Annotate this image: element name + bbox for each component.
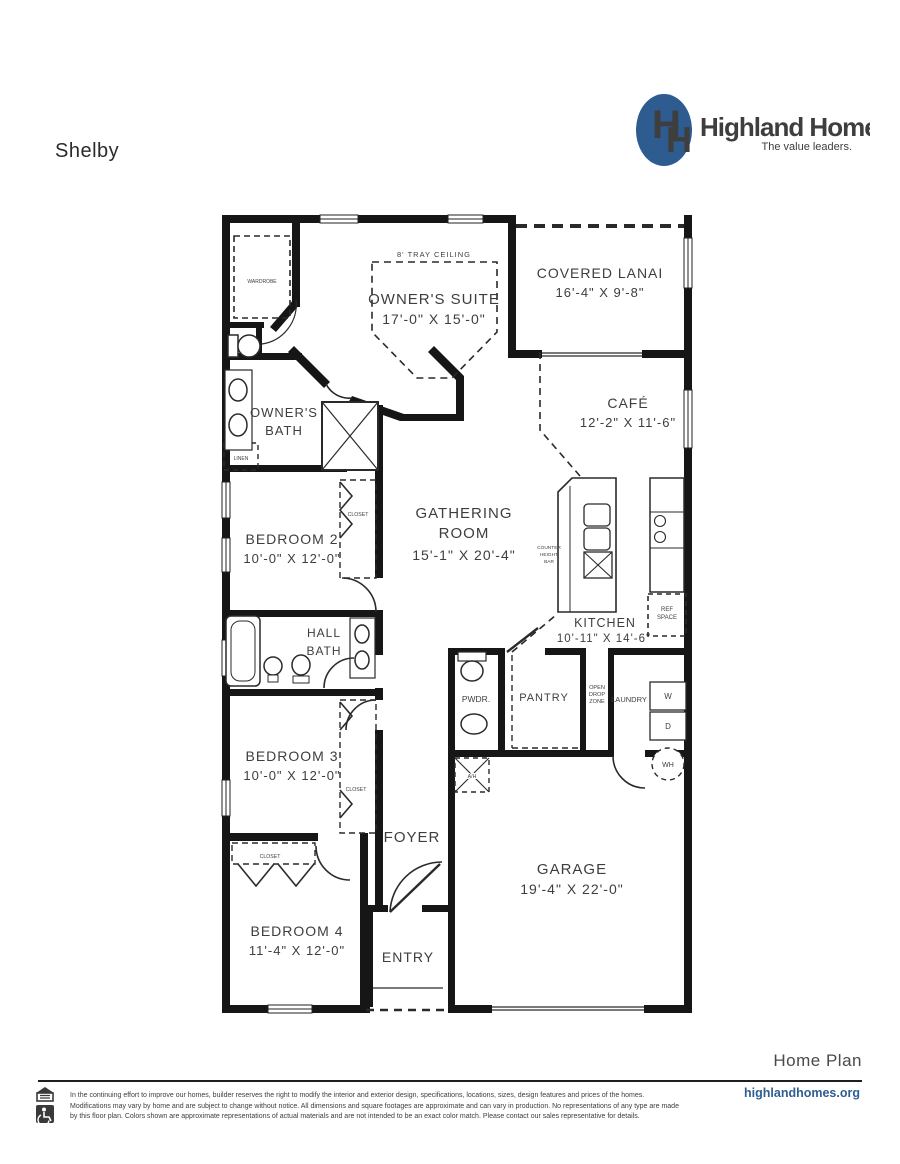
drop-zone-label1: OPEN [589,685,605,691]
owners-bath-label1: OWNER'S [250,405,318,420]
counter-bar-label3: BAR [544,559,554,565]
counter-bar-label2: HEIGHT [540,552,558,558]
bathtub-icon [226,616,260,686]
kitchen-island [558,478,616,612]
kitchen-label: KITCHEN [574,616,636,630]
water-heater-label: WH [662,762,674,769]
sink-icon [264,657,282,675]
range-icon [584,552,612,578]
owners-bath-label2: BATH [265,423,303,438]
footer-icons [34,1086,58,1126]
closet2-label: CLOSET [348,512,370,518]
covered-lanai-label: COVERED LANAI [537,265,664,281]
ref-space-label2: SPACE [657,615,677,621]
drop-zone-label3: ZONE [589,699,605,705]
hall-bath-label1: HALL [307,626,341,640]
home-plan-caption: Home Plan [773,1051,862,1071]
garage-dims: 19'-4" X 22'-0" [520,881,623,897]
covered-lanai-dims: 16'-4" X 9'-8" [556,285,645,300]
pantry-label: PANTRY [519,692,569,704]
cooktop-icon [655,532,666,543]
bedroom2-label: BEDROOM 2 [245,531,338,547]
counter-bar-label1: COUNTER [537,545,561,551]
garage-label: GARAGE [537,861,607,878]
foyer-label: FOYER [384,829,441,846]
gathering-room-label1: GATHERING [415,505,512,522]
owners-suite-dims: 17'-0" X 15'-0" [382,311,485,327]
gathering-room-dims: 15'-1" X 20'-4" [412,547,515,563]
sink-icon [229,414,247,436]
bedroom3-label: BEDROOM 3 [245,748,338,764]
cafe-label: CAFÉ [607,395,648,411]
document-page: Shelby H H Highland Homes The value lead… [0,0,900,1164]
shower-icon [322,402,378,470]
washer-label: W [664,692,672,701]
equal-housing-icon [36,1087,54,1101]
bedroom2-dims: 10'-0" X 12'-0" [243,551,340,566]
bedroom4-dims: 11'-4" X 12'-0" [249,943,345,958]
kitchen-counter [650,478,684,592]
toilet-bowl-icon [238,335,260,357]
sink-icon [461,714,487,734]
website-link[interactable]: highlandhomes.org [744,1086,860,1100]
footer-divider [38,1080,862,1082]
kitchen-dims: 10'-11" X 14'-6" [557,633,651,645]
closet4-label: CLOSET [260,854,282,860]
linen-label: LINEN [234,456,249,462]
air-handler-label: A/H [468,774,477,780]
thin-openings [373,350,644,1010]
floor-plan-drawing: 8' TRAY CEILING OWNER'S SUITE 17'-0" X 1… [0,0,900,1164]
accessibility-icon [36,1105,54,1125]
disclaimer-text: In the continuing effort to improve our … [70,1091,684,1123]
wardrobe-label: WARDROBE [247,279,277,285]
bedroom3-dims: 10'-0" X 12'-0" [243,768,340,783]
bedroom4-label: BEDROOM 4 [250,923,343,939]
kitchen-sink-icon [584,528,610,550]
toilet-bowl-icon [292,655,310,675]
hall-bath-label2: BATH [306,644,341,658]
dryer-label: D [665,722,671,731]
tray-ceiling-label: 8' TRAY CEILING [397,250,471,259]
cafe-dims: 12'-2" X 11'-6" [580,415,676,430]
toilet-bowl-icon [461,661,483,681]
closet3-label: CLOSET [346,787,368,793]
laundry-label: LAUNDRY [611,695,647,704]
sink-icon [229,379,247,401]
powder-label: PWDR. [462,694,490,704]
kitchen-sink-icon [584,504,610,526]
entry-label: ENTRY [382,949,434,965]
sink-icon [355,625,369,643]
gathering-room-label2: ROOM [439,525,490,542]
drop-zone-label2: DROP [589,692,605,698]
sink-icon [355,651,369,669]
toilet-tank-icon [228,335,238,357]
ref-space-label1: REF [661,607,673,613]
owners-suite-label: OWNER'S SUITE [368,291,500,308]
cooktop-icon [655,516,666,527]
